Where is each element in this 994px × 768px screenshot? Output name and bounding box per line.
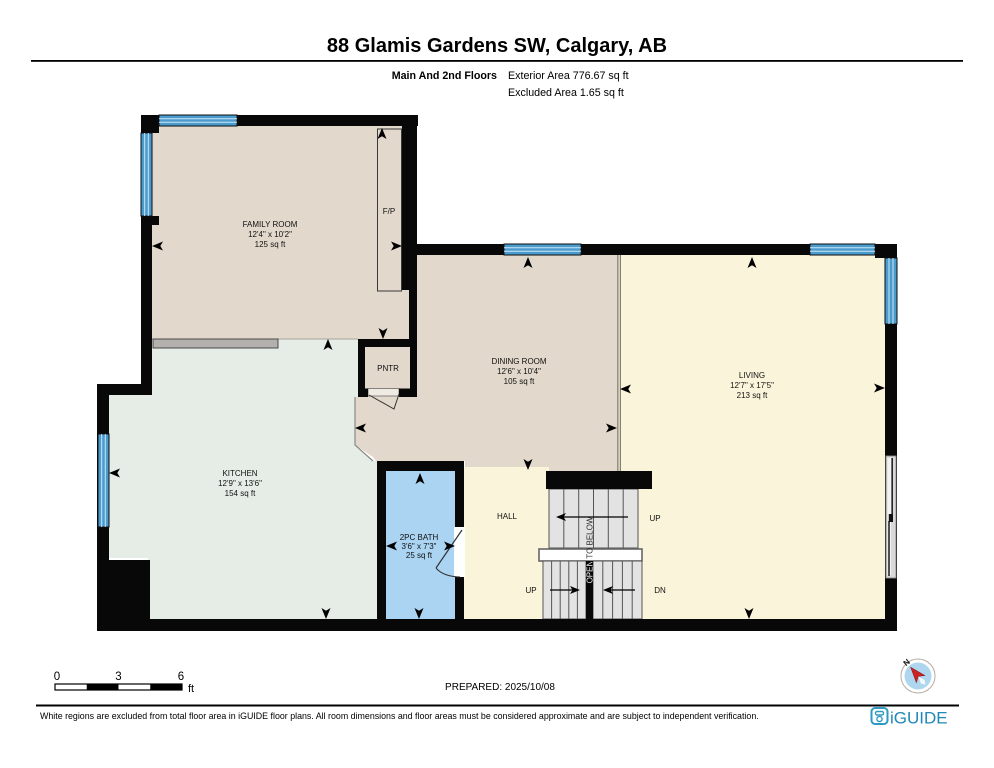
svg-text:FAMILY ROOM: FAMILY ROOM bbox=[243, 220, 298, 229]
svg-text:PREPARED: 2025/10/08: PREPARED: 2025/10/08 bbox=[445, 682, 555, 693]
svg-text:105 sq ft: 105 sq ft bbox=[504, 377, 535, 386]
svg-text:UP: UP bbox=[649, 514, 660, 523]
svg-text:88 Glamis Gardens SW, Calgary,: 88 Glamis Gardens SW, Calgary, AB bbox=[327, 35, 667, 57]
svg-text:Exterior Area 776.67 sq ft: Exterior Area 776.67 sq ft bbox=[508, 70, 629, 82]
svg-text:ft: ft bbox=[188, 683, 194, 695]
svg-text:12'7" x 17'5": 12'7" x 17'5" bbox=[730, 381, 774, 390]
svg-text:213 sq ft: 213 sq ft bbox=[737, 391, 768, 400]
svg-text:Excluded Area 1.65 sq ft: Excluded Area 1.65 sq ft bbox=[508, 87, 624, 99]
svg-text:Main And 2nd Floors: Main And 2nd Floors bbox=[392, 70, 497, 82]
svg-text:6: 6 bbox=[178, 671, 184, 683]
svg-text:KITCHEN: KITCHEN bbox=[222, 469, 257, 478]
svg-text:3: 3 bbox=[115, 671, 121, 683]
svg-text:12'9" x 13'6": 12'9" x 13'6" bbox=[218, 479, 262, 488]
svg-text:12'6" x 10'4": 12'6" x 10'4" bbox=[497, 367, 541, 376]
svg-text:125 sq ft: 125 sq ft bbox=[255, 240, 286, 249]
svg-text:LIVING: LIVING bbox=[739, 371, 765, 380]
svg-text:154 sq ft: 154 sq ft bbox=[225, 489, 256, 498]
svg-text:25 sq ft: 25 sq ft bbox=[406, 551, 433, 560]
svg-text:0: 0 bbox=[54, 671, 60, 683]
svg-text:12'4" x 10'2": 12'4" x 10'2" bbox=[248, 230, 292, 239]
svg-text:2PC BATH: 2PC BATH bbox=[400, 533, 439, 542]
svg-text:UP: UP bbox=[525, 586, 536, 595]
svg-text:HALL: HALL bbox=[497, 512, 518, 521]
svg-text:F/P: F/P bbox=[383, 207, 395, 216]
svg-text:PNTR: PNTR bbox=[377, 364, 399, 373]
svg-text:iGUIDE: iGUIDE bbox=[890, 709, 948, 728]
svg-text:3'6" x 7'3": 3'6" x 7'3" bbox=[402, 542, 437, 551]
svg-text:DN: DN bbox=[654, 586, 666, 595]
svg-text:White regions are excluded fro: White regions are excluded from total fl… bbox=[40, 711, 759, 721]
svg-text:DINING ROOM: DINING ROOM bbox=[491, 357, 546, 366]
